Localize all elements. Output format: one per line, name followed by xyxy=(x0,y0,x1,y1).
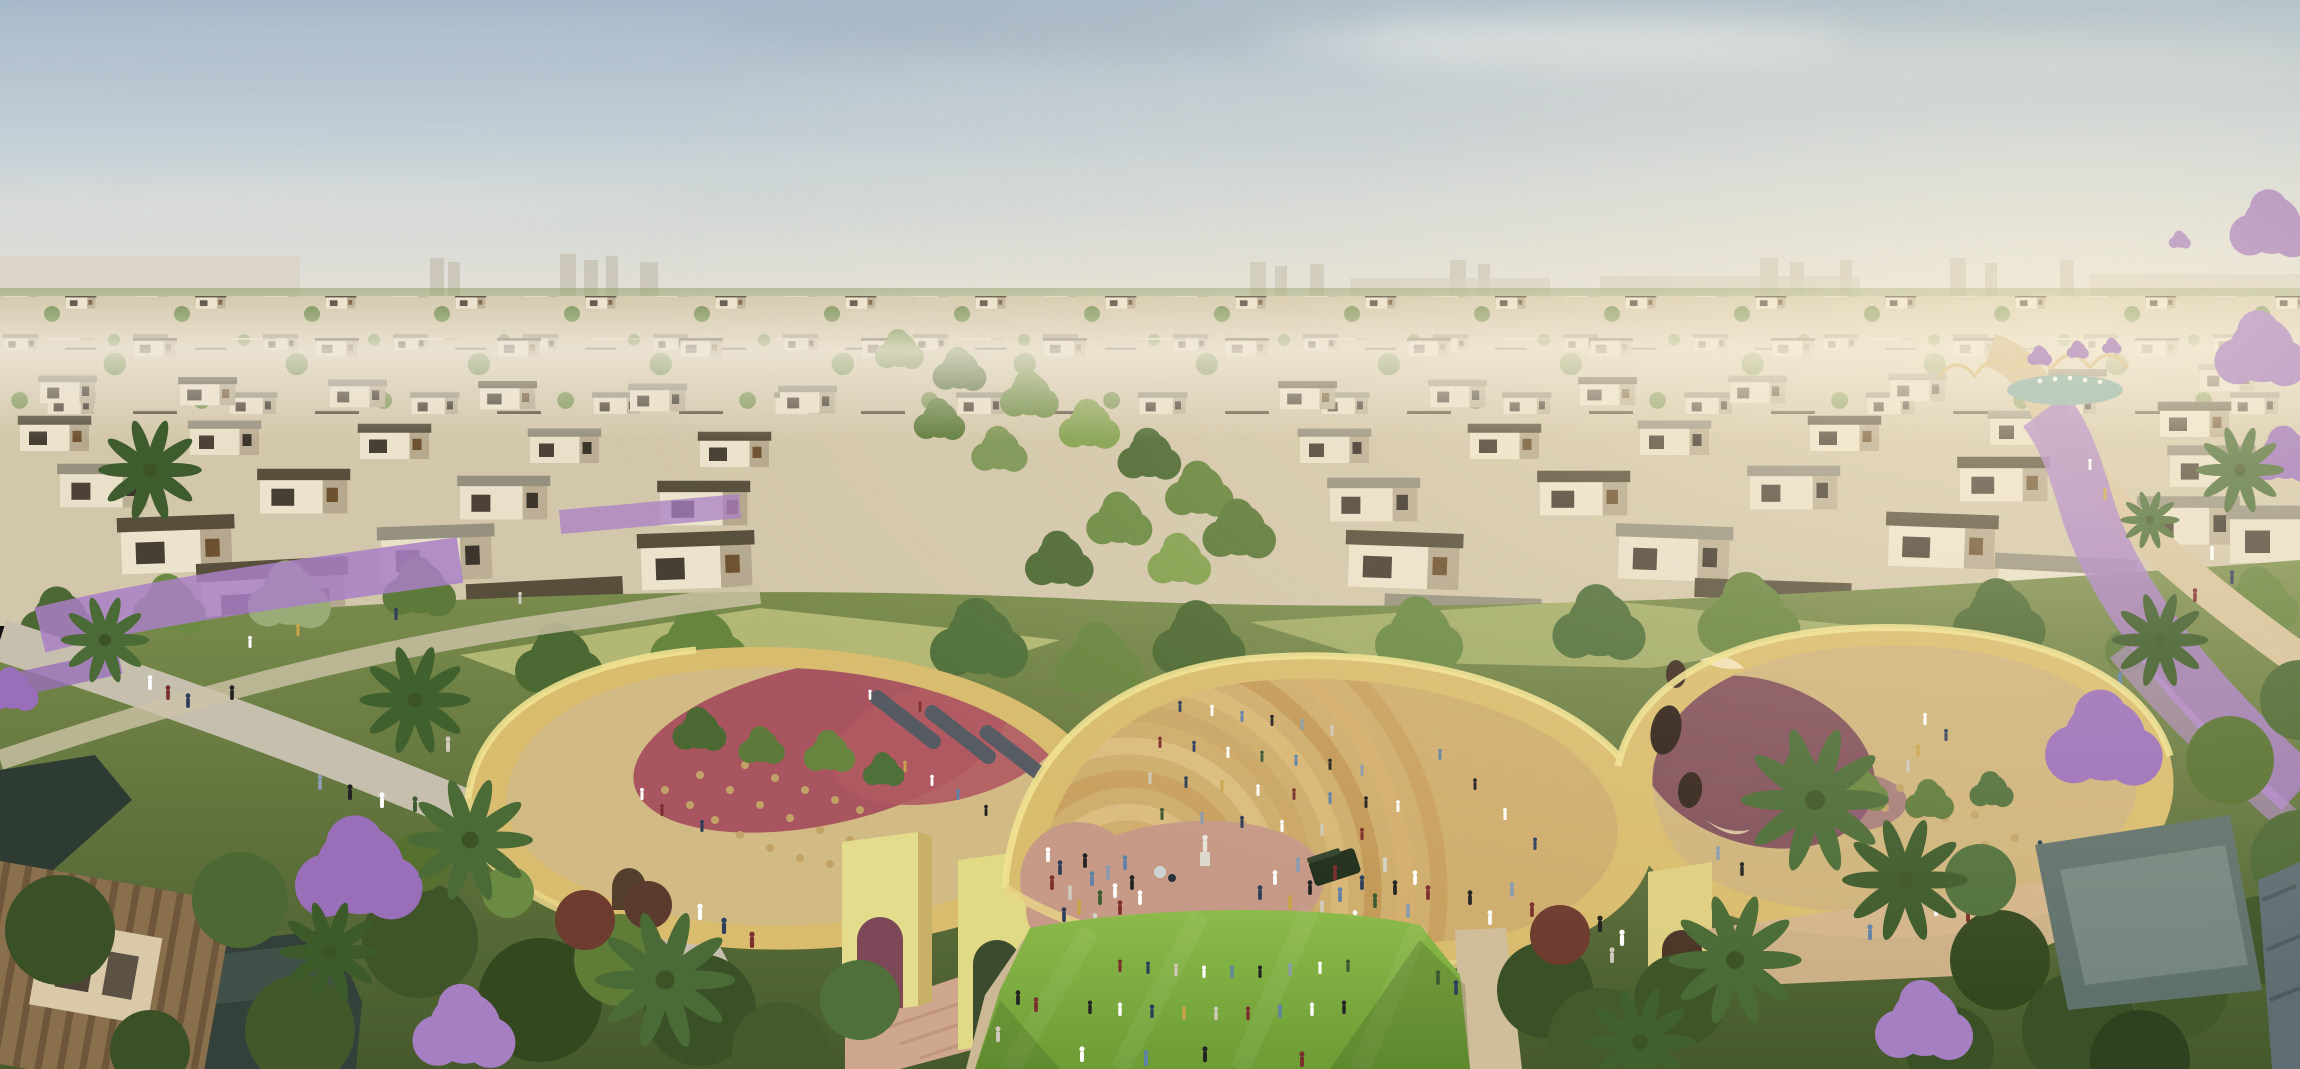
sunlight-glow xyxy=(0,0,2300,1069)
scene-canvas xyxy=(0,0,2300,1069)
rendered-scene xyxy=(0,0,2300,1069)
